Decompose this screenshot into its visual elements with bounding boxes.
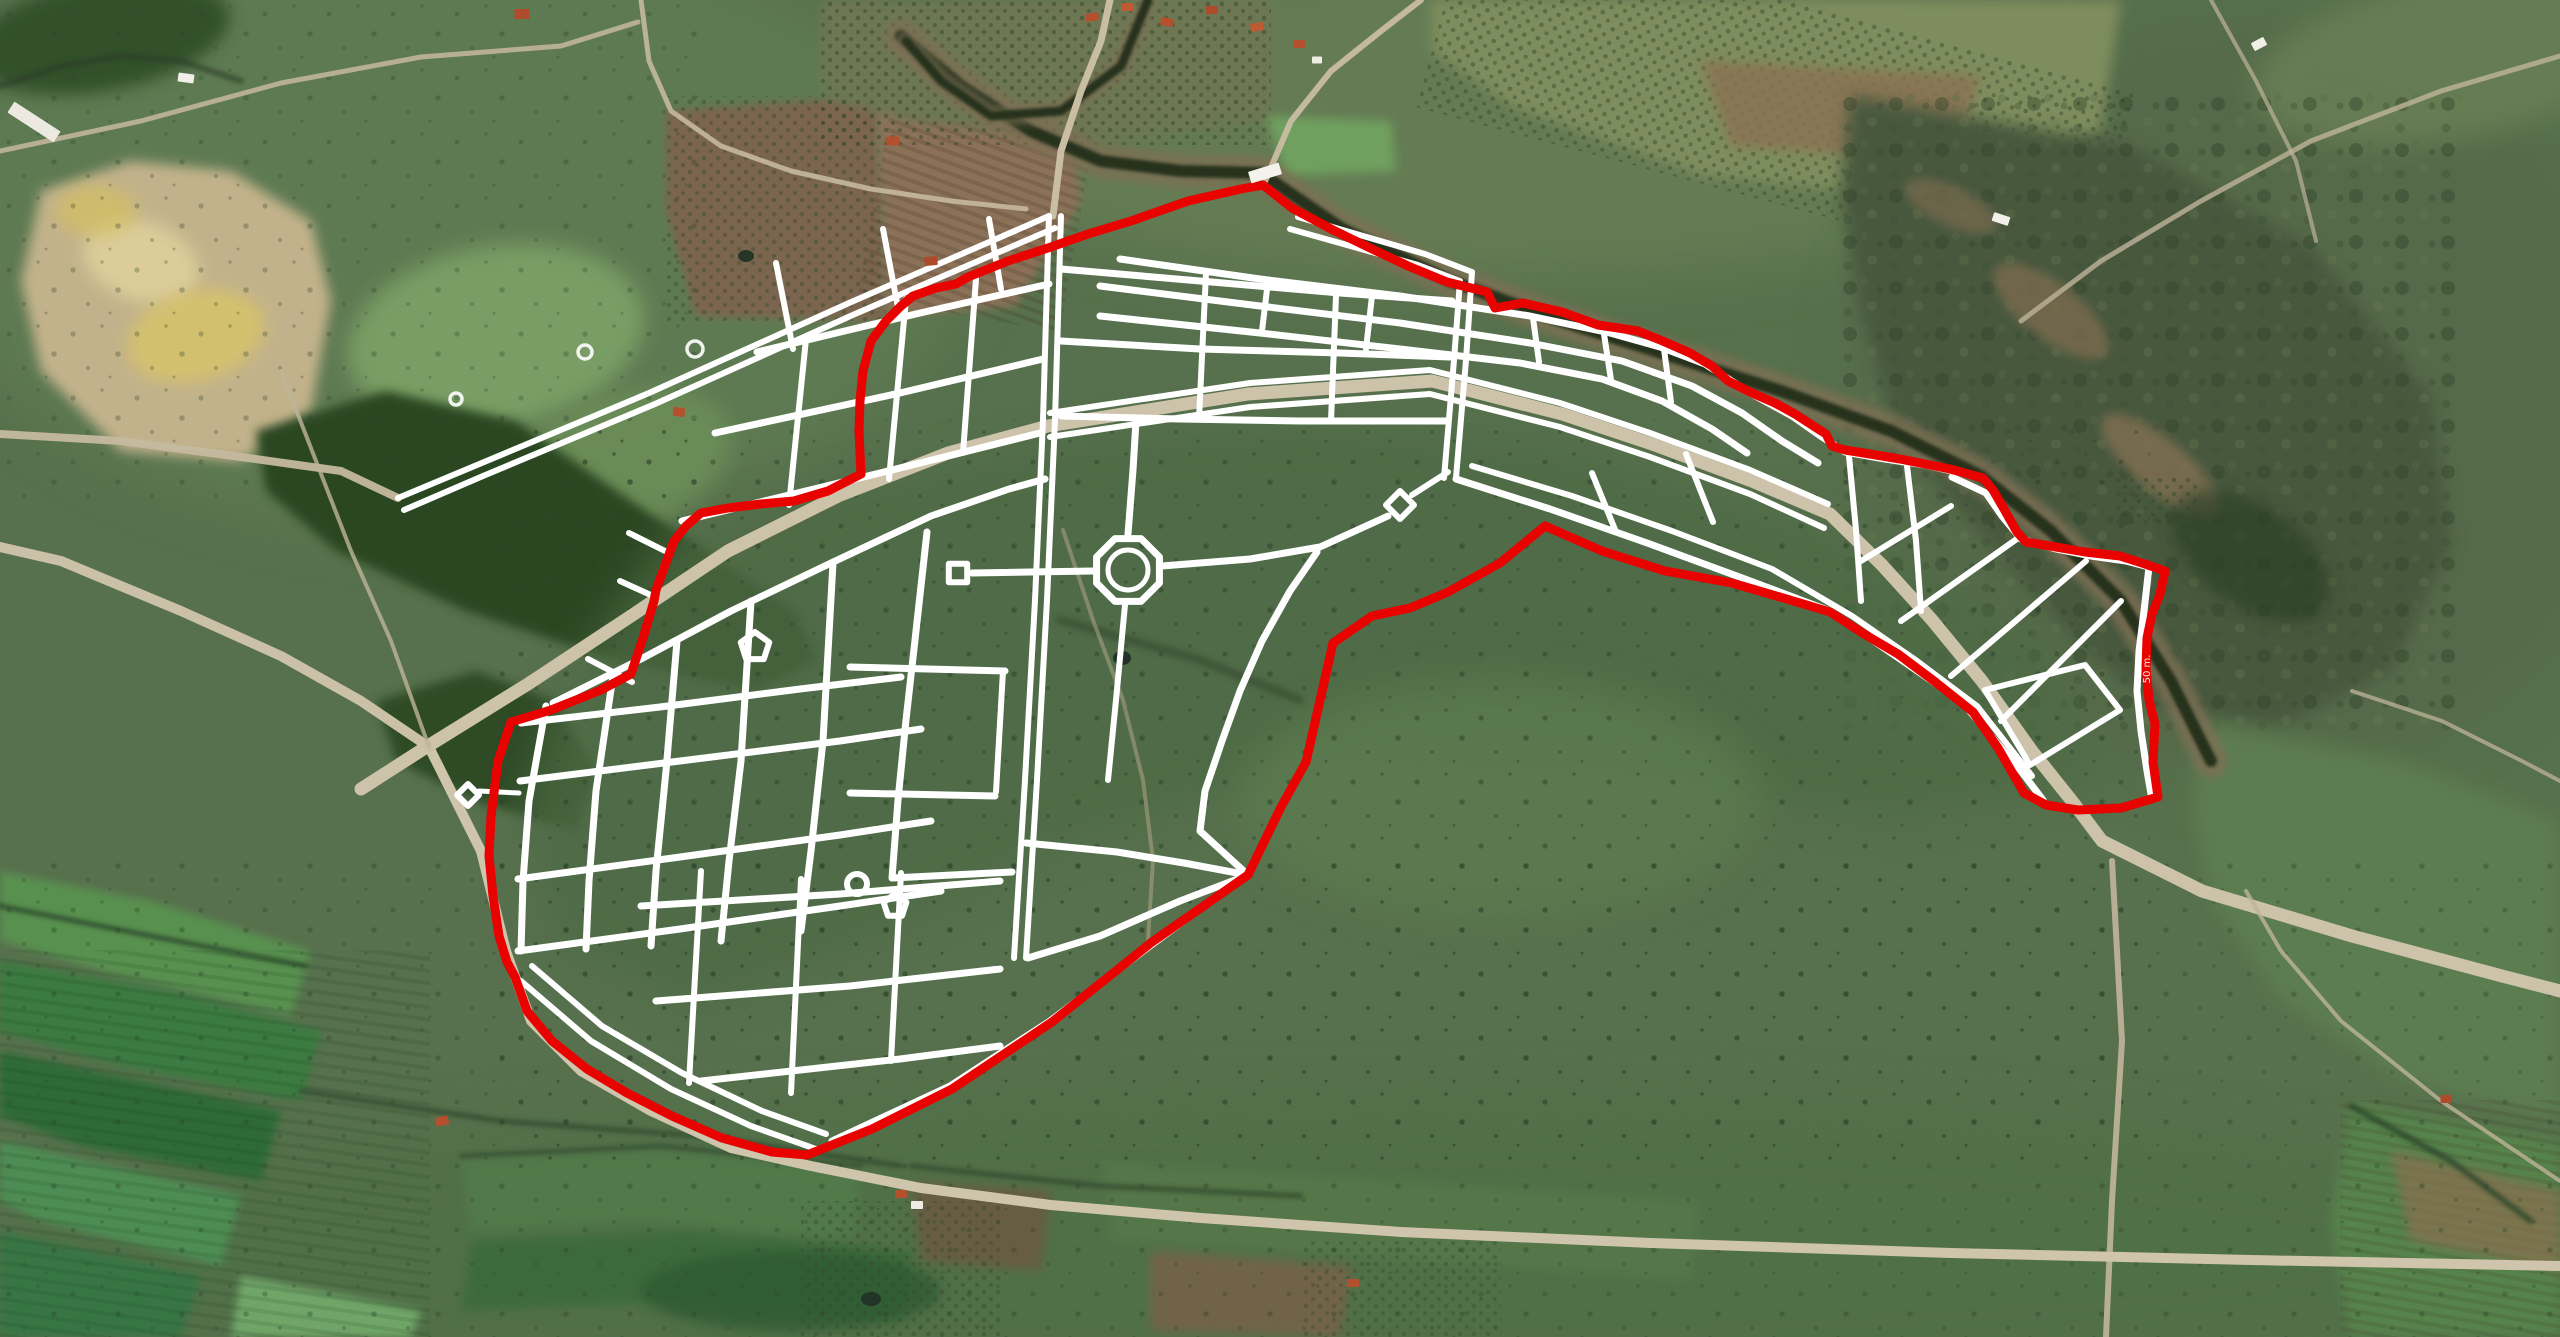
building — [2441, 1095, 2452, 1103]
building — [911, 1201, 923, 1209]
satellite-map: 50 m. — [0, 0, 2560, 1337]
terrain-blob — [1266, 116, 1396, 176]
building — [1121, 3, 1133, 11]
planned-road-overlay — [850, 793, 995, 796]
labels-layer: 50 m. — [2142, 655, 2153, 684]
screenshot-root: 50 m. — [0, 0, 2560, 1337]
building — [924, 256, 938, 266]
terrain-texture — [0, 850, 2560, 1337]
building — [1312, 57, 1322, 64]
planned-road-overlay — [479, 791, 519, 793]
terrain-blob — [861, 1292, 881, 1306]
building — [1206, 6, 1218, 14]
distance-label: 50 m. — [2142, 655, 2153, 684]
planned-road-overlay — [972, 571, 1094, 573]
building — [515, 9, 530, 19]
terrain-texture — [0, 0, 700, 500]
building — [1347, 1279, 1359, 1287]
building — [895, 1190, 907, 1198]
building — [1293, 40, 1305, 48]
building — [887, 137, 900, 146]
terrain-blob — [738, 250, 754, 262]
planned-road-overlay — [850, 667, 1005, 671]
